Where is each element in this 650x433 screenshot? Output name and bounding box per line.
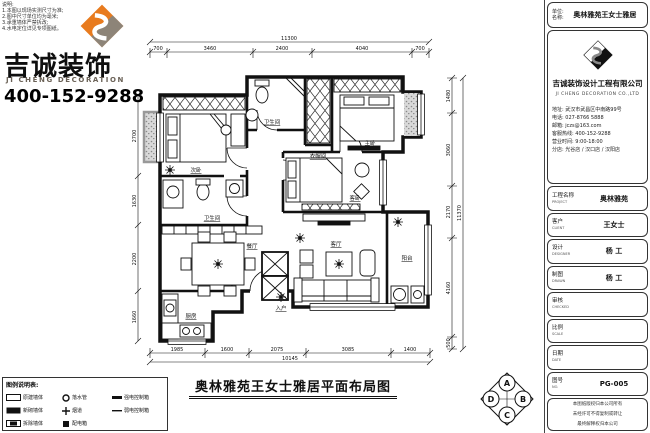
drawing-sheet: 次卧 卫生间 衣帽间 主卧 客卧 卫生间 餐厅 厨房 客厅 阳台 入户	[0, 0, 650, 433]
power-box-icon	[62, 420, 70, 428]
svg-text:4160: 4160	[446, 282, 452, 295]
titleblock-company: 吉诚装饰设计工程有限公司 JI CHENG DECORATION CO.,LTD…	[547, 30, 648, 184]
room-label-bath2: 卫生间	[204, 214, 221, 222]
room-label-kitchen: 厨房	[185, 312, 197, 320]
legend-item: 新砌墙体	[6, 407, 62, 414]
svg-text:500: 500	[446, 338, 452, 348]
wall-outline-icon	[6, 394, 21, 401]
svg-text:C: C	[504, 411, 510, 420]
svg-text:700: 700	[415, 46, 425, 52]
titleblock-row-checked: 审核CHECKED	[547, 292, 648, 316]
room-label-balcony: 阳台	[401, 254, 413, 262]
legend-item: 原建墙体	[6, 394, 62, 401]
elevation-marker: A B C D	[476, 368, 538, 433]
legend-item: 落水管	[62, 394, 112, 402]
legend: 图例说明表: 原建墙体 落水管 强电控制箱 新砌墙体 烟道	[2, 377, 168, 431]
title-block: 单位: 名称: 奥林雅苑王女士雅居 吉诚装饰设计工程有限公司 JI CHENG …	[544, 0, 650, 433]
plan-title-text: 奥林雅苑王女士雅居平面布局图	[189, 376, 397, 399]
svg-text:2170: 2170	[446, 206, 452, 219]
wall-filled-icon	[6, 407, 21, 414]
svg-text:B: B	[520, 395, 526, 404]
svg-text:2700: 2700	[132, 130, 138, 143]
svg-text:1985: 1985	[171, 347, 184, 353]
drawing-number-value: PG-005	[585, 380, 643, 388]
titleblock-row-scale: 比例SCALE	[547, 319, 648, 343]
legend-item: 弱电控制箱	[112, 407, 166, 414]
legend-header: 图例说明表:	[6, 380, 164, 389]
downpipe-icon	[62, 394, 70, 402]
note-line: 4.水电定位详见专项图纸。	[2, 26, 74, 32]
titleblock-row-date: 日期DATE	[547, 345, 648, 369]
svg-text:11300: 11300	[281, 36, 297, 42]
svg-text:2075: 2075	[271, 347, 284, 353]
svg-text:D: D	[488, 395, 495, 404]
wall-demolish-icon	[6, 420, 21, 427]
room-label-bedroom2: 次卧	[190, 166, 202, 174]
svg-text:2200: 2200	[132, 253, 138, 266]
brand-name-en: JI CHENG DECORATION	[6, 76, 125, 84]
svg-text:3460: 3460	[204, 46, 217, 52]
titleblock-row-client: 客户CLIENT 王女士	[547, 213, 648, 237]
logo-small-icon	[581, 39, 615, 71]
logo-diamond-icon	[76, 2, 128, 50]
room-label-closet: 衣帽间	[310, 152, 327, 160]
svg-text:1400: 1400	[404, 347, 417, 353]
room-label-dining: 餐厅	[246, 242, 258, 250]
designer-value: 杨 工	[585, 246, 643, 256]
svg-text:2400: 2400	[276, 46, 289, 52]
titleblock-header: 单位: 名称: 奥林雅苑王女士雅居	[547, 2, 648, 28]
legend-item: 强电控制箱	[112, 394, 166, 401]
room-label-master: 主卧	[364, 139, 376, 147]
legend-item: 拆除墙体	[6, 420, 62, 427]
svg-text:10145: 10145	[282, 356, 298, 362]
svg-text:1480: 1480	[446, 90, 452, 103]
svg-text:A: A	[504, 379, 511, 388]
svg-text:4040: 4040	[356, 46, 369, 52]
strong-current-icon	[112, 395, 122, 400]
company-name-cn: 吉诚装饰设计工程有限公司	[553, 78, 643, 89]
brand-phone: 400-152-9288	[4, 86, 144, 107]
svg-text:700: 700	[153, 46, 163, 52]
weak-current-icon	[112, 408, 122, 413]
company-info: 地址: 武汉市武昌区中南路99号 电话: 027-8766 5888 邮箱: j…	[552, 106, 643, 154]
svg-text:1660: 1660	[132, 311, 138, 324]
titleblock-footer: 本图纸版权归本公司所有 未经许可不得复制或转让 最终解释权归本公司	[547, 398, 648, 431]
svg-text:1630: 1630	[132, 195, 138, 208]
svg-text:1600: 1600	[221, 347, 234, 353]
company-name-en: JI CHENG DECORATION CO.,LTD	[556, 92, 640, 97]
svg-text:11370: 11370	[457, 205, 463, 221]
project-full-name: 奥林雅苑王女士雅居	[567, 10, 643, 20]
legend-item: 烟道	[62, 407, 112, 415]
room-label-entry: 入户	[275, 304, 286, 312]
svg-text:3085: 3085	[342, 347, 355, 353]
titleblock-row-number: 图号NO. PG-005	[547, 372, 648, 396]
legend-item: 配电箱	[62, 420, 112, 428]
titleblock-row-designer: 设计DESIGNER 杨 工	[547, 239, 648, 263]
room-label-bath1: 卫生间	[264, 118, 281, 126]
drawn-value: 杨 工	[585, 273, 643, 283]
project-name-value: 奥林雅苑	[585, 194, 643, 204]
drawing-notes: 说明: 1.本图以现场实测尺寸为准; 2.图中尺寸单位均为毫米; 3.承重墙体严…	[2, 2, 74, 32]
plan-title: 奥林雅苑王女士雅居平面布局图	[168, 376, 418, 399]
svg-text:3060: 3060	[446, 144, 452, 157]
flue-icon	[62, 407, 70, 415]
titleblock-row-drawn: 制图DRAWN 杨 工	[547, 266, 648, 290]
room-label-living: 客厅	[330, 240, 342, 248]
client-value: 王女士	[585, 220, 643, 230]
titleblock-row-project: 工程名称PROJECT 奥林雅苑	[547, 186, 648, 210]
room-label-bedroom3: 客卧	[349, 194, 361, 202]
